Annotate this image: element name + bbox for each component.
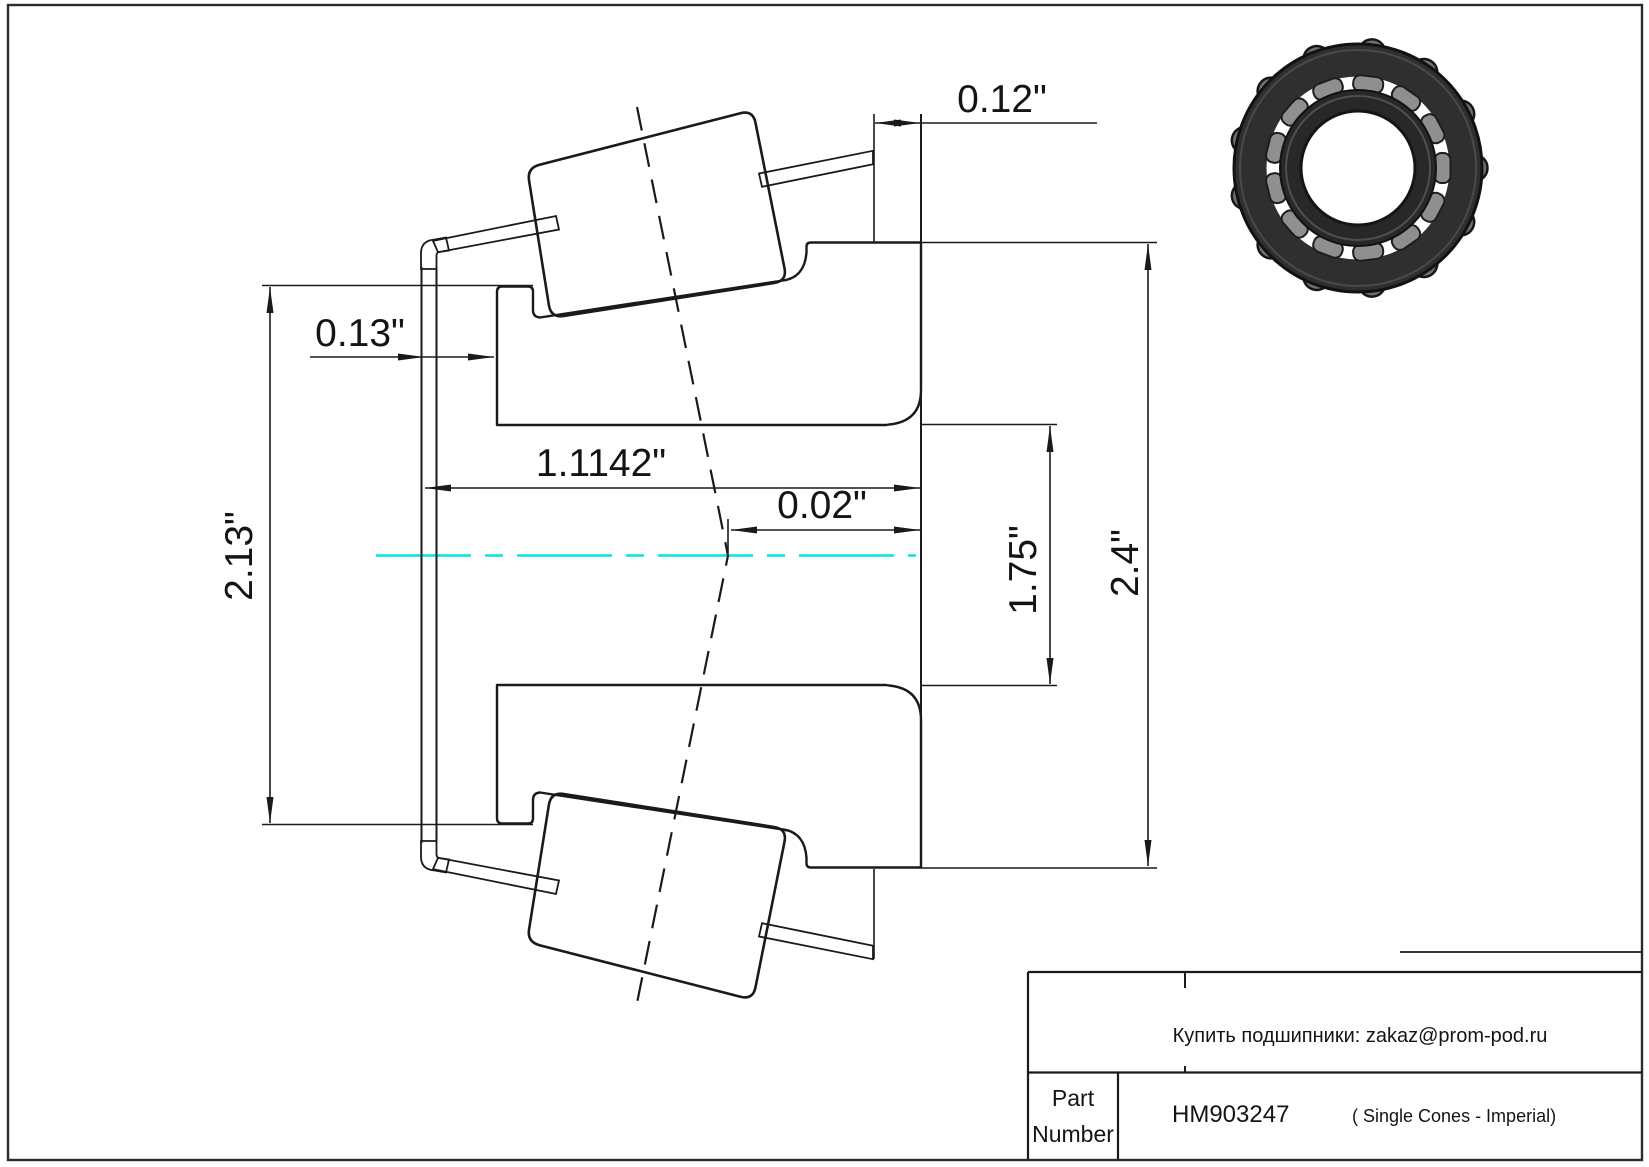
- dim-front-offset-label: 0.13": [315, 312, 405, 355]
- dim-cone-width-label: 1.1142": [536, 442, 666, 485]
- part-label-line2: Number: [1032, 1121, 1114, 1147]
- dim-bore-label: 1.75": [1002, 525, 1045, 615]
- series-note: ( Single Cones - Imperial): [1352, 1106, 1556, 1126]
- dim-back-rib-od-label: 2.4": [1104, 529, 1147, 597]
- part-label-line1: Part: [1052, 1085, 1095, 1111]
- dim-apex-offset-label: 0.02": [777, 484, 867, 527]
- bore-hole: [1301, 111, 1415, 225]
- dim-cage-overhang-label: 0.12": [957, 78, 1047, 121]
- part-number-value: HM903247: [1172, 1101, 1289, 1128]
- technical-drawing-sheet: 0.12" 0.13" 2.13" 1.1142": [0, 0, 1649, 1167]
- order-contact-line: Купить подшипники: zakaz@prom-pod.ru: [1173, 1025, 1548, 1047]
- dim-front-rib-od-label: 2.13": [218, 511, 261, 601]
